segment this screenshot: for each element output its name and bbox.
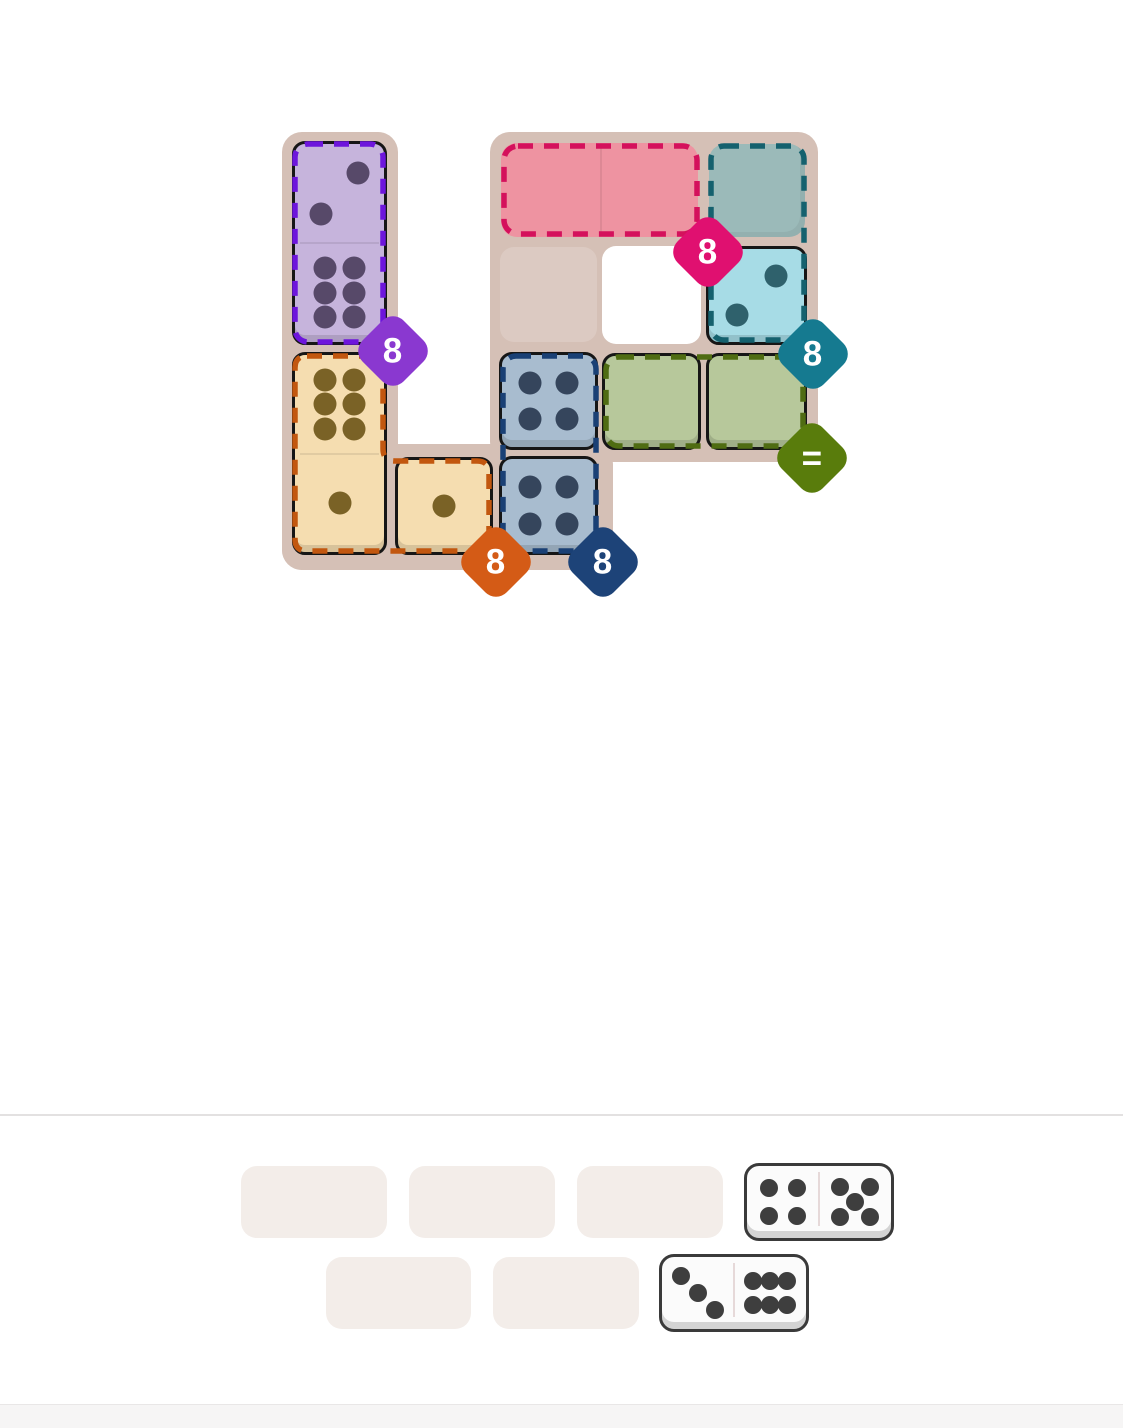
teal-zone-fill <box>709 144 805 237</box>
domino-divider <box>300 453 378 455</box>
green-square-left[interactable] <box>602 353 701 450</box>
pip-dot <box>761 1272 779 1290</box>
tray-slot-1 <box>241 1166 387 1238</box>
pip-dot <box>556 408 579 431</box>
pip-dot <box>788 1207 806 1225</box>
blue-square-top[interactable] <box>499 352 598 450</box>
pip-dot <box>342 417 365 440</box>
pip-dot <box>314 393 337 416</box>
tray-domino-3-6-left-half <box>662 1257 734 1329</box>
pip-dot <box>518 408 541 431</box>
blue-square-top-face <box>502 355 595 447</box>
pip-dot <box>556 475 579 498</box>
tray-domino-4-5[interactable] <box>744 1163 894 1241</box>
pip-dot <box>788 1179 806 1197</box>
pink-zone-cell-divider <box>600 147 602 233</box>
pip-dot <box>846 1193 864 1211</box>
pip-dot <box>556 513 579 536</box>
tray-slot-3 <box>577 1166 723 1238</box>
purple-domino-top-half <box>295 144 384 243</box>
pip-dot <box>778 1272 796 1290</box>
tan-square-face <box>398 460 490 552</box>
pip-dot <box>831 1178 849 1196</box>
pip-dot <box>760 1207 778 1225</box>
pink-zone-fill <box>501 143 698 237</box>
pip-dot <box>744 1296 762 1314</box>
pip-dot <box>760 1179 778 1197</box>
pip-dot <box>314 306 337 329</box>
pip-dot <box>518 513 541 536</box>
pip-dot <box>689 1284 707 1302</box>
tray-slot-2 <box>409 1166 555 1238</box>
pip-dot <box>706 1301 724 1319</box>
tray-section-divider <box>0 1114 1123 1116</box>
purple-domino-bottom-half <box>295 243 384 342</box>
pip-dot <box>314 281 337 304</box>
pip-dot <box>831 1208 849 1226</box>
pip-dot <box>309 203 332 226</box>
pip-dot <box>556 371 579 394</box>
tray-slot-5 <box>493 1257 639 1329</box>
pip-dot <box>861 1178 879 1196</box>
pip-dot <box>347 161 370 184</box>
orange-domino-bottom-half <box>295 454 384 553</box>
pip-dot <box>314 368 337 391</box>
domino-divider <box>300 242 378 244</box>
pip-dot <box>342 306 365 329</box>
pip-dot <box>778 1296 796 1314</box>
pip-dot <box>433 495 456 518</box>
pip-dot <box>342 368 365 391</box>
pip-dot <box>761 1296 779 1314</box>
pip-dot <box>342 281 365 304</box>
olive-zone-badge-label: = <box>802 440 822 475</box>
pip-dot <box>342 393 365 416</box>
pip-dot <box>342 256 365 279</box>
empty-board-cell <box>500 247 597 342</box>
tray-domino-3-6[interactable] <box>659 1254 809 1332</box>
pip-dot <box>518 371 541 394</box>
tray-domino-divider <box>818 1172 820 1227</box>
pip-dot <box>518 475 541 498</box>
bottom-bar <box>0 1404 1123 1428</box>
tray-slot-4 <box>326 1257 471 1329</box>
pip-dot <box>314 417 337 440</box>
blue-square-bottom-face <box>502 459 595 552</box>
teal-zone-badge-label: 8 <box>803 337 822 372</box>
purple-domino[interactable] <box>292 141 387 345</box>
purple-zone-badge-label: 8 <box>383 334 402 369</box>
tray-domino-4-5-right-half <box>819 1166 891 1238</box>
navy-zone-badge-label: 8 <box>593 545 612 580</box>
tray-domino-3-6-right-half <box>734 1257 806 1329</box>
pip-dot <box>765 264 788 287</box>
pip-dot <box>314 256 337 279</box>
green-square-left-face <box>605 356 698 447</box>
pip-dot <box>861 1208 879 1226</box>
tray-domino-4-5-left-half <box>747 1166 819 1238</box>
pip-dot <box>328 491 351 514</box>
pip-dot <box>744 1272 762 1290</box>
orange-domino[interactable] <box>292 352 387 555</box>
orange-zone-badge-label: 8 <box>486 545 505 580</box>
pip-dot <box>725 304 748 327</box>
tray-domino-divider <box>733 1263 735 1318</box>
pink-zone-badge-label: 8 <box>698 235 717 270</box>
pip-dot <box>672 1267 690 1285</box>
